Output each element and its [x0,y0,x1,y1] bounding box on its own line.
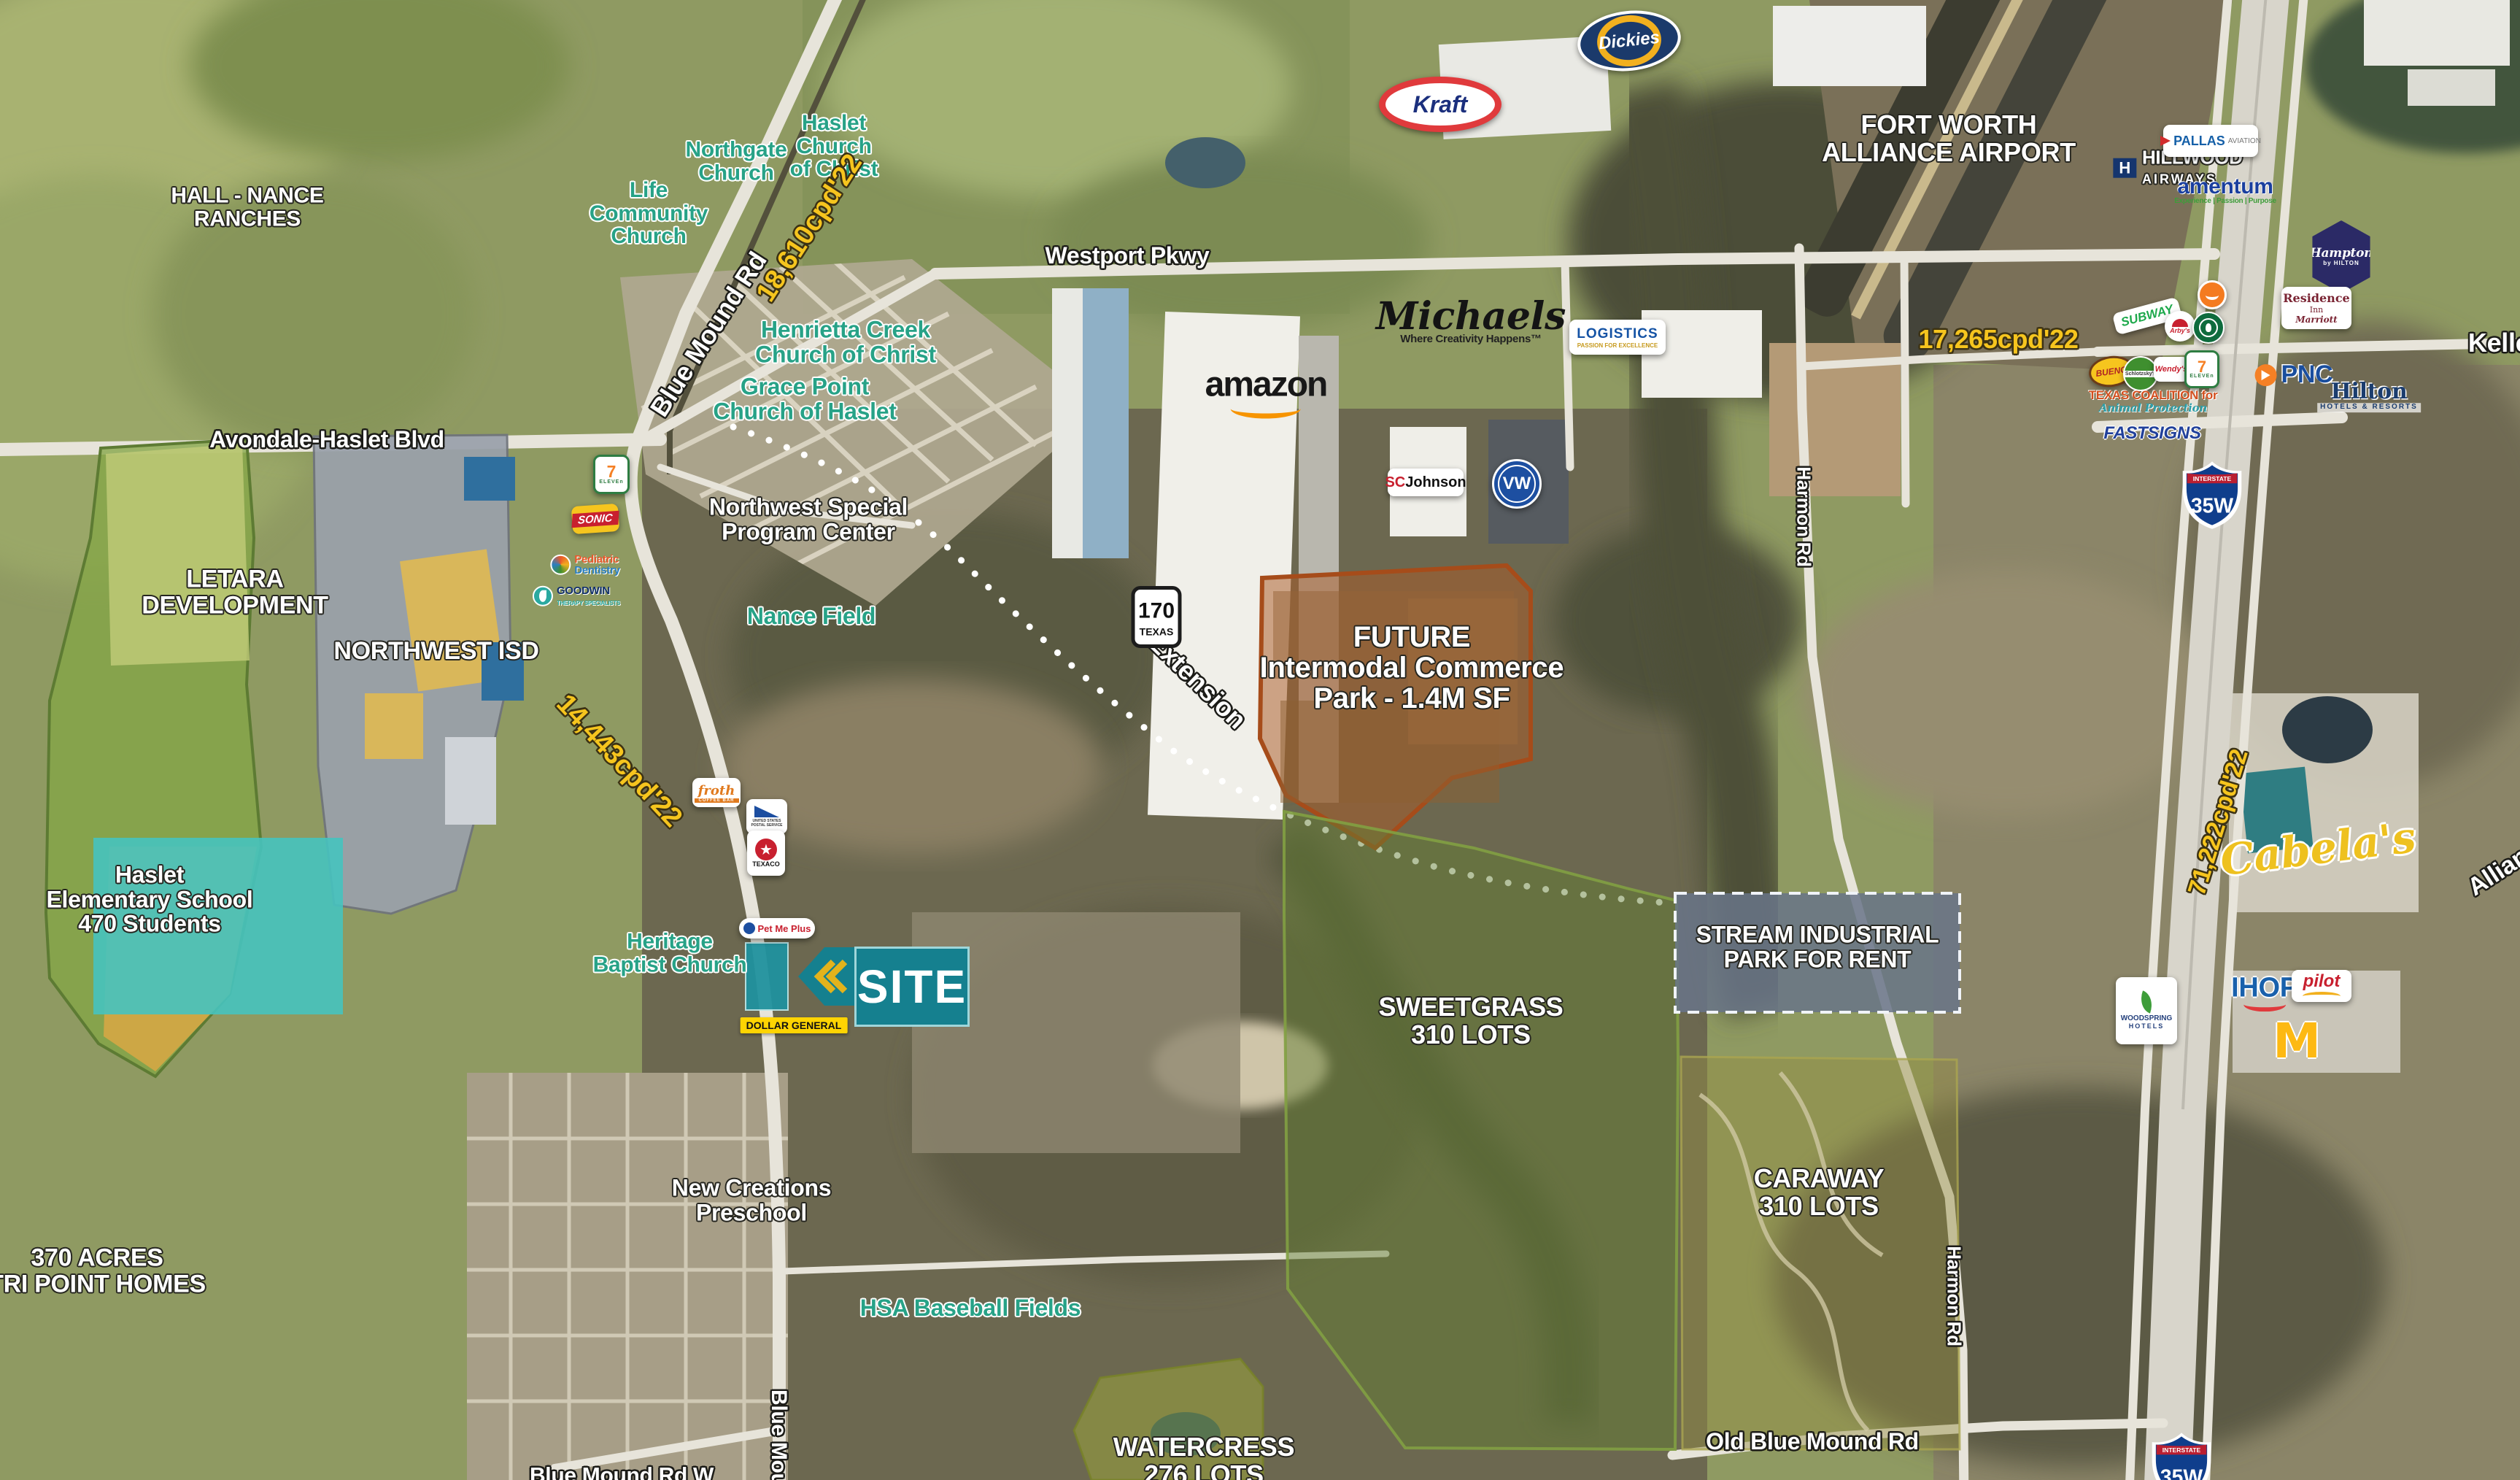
pallas-icon [2160,136,2171,146]
label-watercress: WATERCRESS 276 LOTS [1113,1433,1294,1480]
usps-logo: UNITED STATES POSTAL SERVICE [746,799,787,834]
residence-inn-logo: Residence Inn Marriott [2281,287,2351,329]
label-life-community-church: Life Community Church [590,179,708,248]
mcdonalds-arches-icon: M [2273,1003,2320,1066]
aerial-site-map: HALL - NANCE RANCHES LETARA DEVELOPMENT … [0,0,2520,1480]
label-haslet-elementary: Haslet Elementary School 470 Students [47,863,253,937]
interstate-35w-shield-north: INTERSTATE 35W [2181,460,2243,534]
label-nance-field: Nance Field [747,604,876,629]
svg-text:35W: 35W [2191,494,2233,517]
label-northwest-special-program-center: Northwest Special Program Center [709,495,908,544]
goodwin-therapy-logo: GOODWINTHERAPY SPECIALISTS [533,585,620,607]
michaels-logo: Michaels Where Creativity Happens™ [1376,285,1566,358]
tx-170-shield: 170 TEXAS [1131,586,1182,652]
label-sweetgrass: SWEETGRASS 310 LOTS [1378,993,1563,1049]
hilton-logo: Hilton HOTELS & RESORTS [2317,368,2421,425]
road-label-old-blue-mound-rd: Old Blue Mound Rd [1706,1430,1919,1454]
aerial-terrain [0,0,2520,1480]
fastsigns-logo: FASTSIGNS [2103,412,2200,442]
seven-eleven-logo-west: 7 ELEVEn [593,455,630,494]
scjohnson-logo: SCJohnson [1388,469,1464,496]
hillwood-h-icon: H [2113,158,2136,177]
label-letara-development: LETARA DEVELOPMENT [142,566,328,618]
pilot-logo: pilot [2292,970,2351,1002]
site-label: SITE [857,960,967,1014]
starbucks-icon [2192,312,2225,344]
texaco-star-icon: ★ [755,839,777,860]
svg-text:35W: 35W [2160,1465,2203,1480]
arbys-logo: Arby's [2165,311,2195,342]
label-stream-industrial-park: STREAM INDUSTRIAL PARK FOR RENT [1696,922,1939,971]
pet-me-plus-logo: Pet Me Plus [739,918,815,939]
arbys-hat-icon [2172,319,2188,327]
froth-coffee-logo: froth COFFEE BAR [692,778,741,807]
label-hall-nance-ranches: HALL - NANCE RANCHES [171,185,323,231]
pallas-aviation-logo: PALLAS AVIATION [2163,125,2258,157]
logistics-logo: LOGISTICS PASSION FOR EXCELLENCE [1569,320,1666,355]
road-label-blue-mound-rd-south: Blue Mound Rd [767,1390,790,1480]
pet-me-plus-icon [743,922,755,934]
popeyes-icon [2198,280,2227,309]
traffic-count-keller-haslet-rd: 17,265cpd'22 [1918,325,2078,353]
goodwin-icon [533,586,553,606]
texaco-logo: ★ TEXACO [747,830,785,876]
label-grace-point-church: Grace Point Church of Haslet [713,374,896,423]
svg-text:170: 170 [1138,599,1175,623]
kraft-logo: Kraft [1379,77,1501,132]
label-new-creations-preschool: New Creations Preschool [672,1176,831,1225]
road-label-westport-pkwy: Westport Pkwy [1046,244,1210,269]
pediatric-dentistry-icon [550,555,571,575]
sonic-logo: SONIC [571,504,619,534]
road-label-blue-mound-rd-w: Blue Mound Rd W [530,1464,714,1480]
svg-text:INTERSTATE: INTERSTATE [2163,1446,2201,1454]
road-label-harmon-rd-south: Harmon Rd [1944,1246,1963,1346]
label-northgate-church: Northgate Church [686,139,787,185]
dollar-general-sign: DOLLAR GENERAL [741,1017,848,1033]
woodspring-hotels-logo: WOODSPRING HOTELS [2116,977,2177,1044]
label-caraway: CARAWAY 310 LOTS [1754,1165,1885,1220]
interstate-35w-shield-south: INTERSTATE 35W [2150,1432,2213,1480]
label-henrietta-creek-church: Henrietta Creek Church of Christ [755,317,936,366]
woodspring-leaf-icon [2136,990,2157,1013]
site-chevron-icon [811,957,848,995]
amentum-logo: amentum Experience | Passion | Purpose [2174,163,2276,218]
label-fort-worth-alliance-airport: FORT WORTH ALLIANCE AIRPORT [1822,111,2076,166]
road-label-keller: Keller [2468,329,2520,357]
amazon-logo: amazon [1205,355,1327,431]
label-future-intermodal-park: FUTURE Intermodal Commerce Park - 1.4M S… [1260,622,1564,714]
pnc-icon [2255,364,2277,386]
label-northwest-isd: NORTHWEST ISD [333,639,538,665]
pilot-swoosh-icon [2303,992,2341,1001]
label-heritage-baptist-church: Heritage Baptist Church [593,930,747,976]
site-callout: SITE [854,947,970,1027]
pediatric-dentistry-logo: PediatricDentistry [550,554,619,577]
road-label-harmon-rd-north: Harmon Rd [1793,466,1813,566]
vw-logo: VW [1492,459,1542,509]
svg-text:TEXAS: TEXAS [1140,626,1174,638]
road-label-avondale-haslet-blvd: Avondale-Haslet Blvd [209,428,444,452]
label-hsa-baseball-fields: HSA Baseball Fields [860,1296,1081,1321]
svg-text:INTERSTATE: INTERSTATE [2193,475,2232,482]
usps-eagle-icon [754,806,779,817]
label-tri-point-homes: 370 ACRES TRI POINT HOMES [0,1245,206,1297]
